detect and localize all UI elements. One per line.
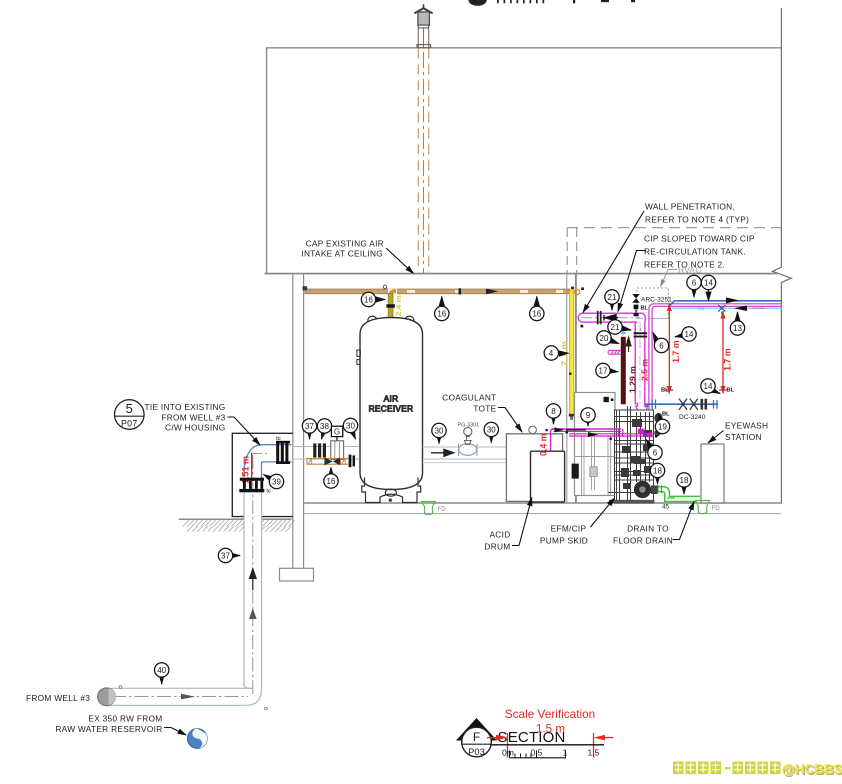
svg-text:RECEIVER: RECEIVER	[369, 403, 414, 413]
svg-text:TIE INTO EXISTING: TIE INTO EXISTING	[144, 402, 225, 412]
svg-text:1.29 m: 1.29 m	[628, 366, 638, 393]
svg-text:BL: BL	[641, 306, 649, 312]
svg-text:37: 37	[305, 422, 314, 431]
svg-text:F: F	[473, 730, 480, 744]
svg-text:FLOOR DRAIN: FLOOR DRAIN	[613, 536, 673, 546]
svg-text:16: 16	[327, 477, 336, 486]
svg-text:40: 40	[157, 666, 166, 675]
svg-text:1.7 m: 1.7 m	[723, 348, 733, 371]
svg-text:TOTE: TOTE	[473, 404, 496, 414]
svg-text:18: 18	[680, 476, 689, 485]
svg-text:Scale Verification: Scale Verification	[505, 707, 596, 721]
svg-text:14: 14	[704, 382, 713, 391]
svg-text:RAW WATER RESERVOIR: RAW WATER RESERVOIR	[55, 724, 162, 734]
svg-text:AIR: AIR	[384, 393, 399, 403]
svg-text:FROM WELL #3: FROM WELL #3	[161, 412, 225, 422]
svg-text:14: 14	[685, 330, 694, 339]
svg-text:PUMP SKID: PUMP SKID	[540, 536, 588, 546]
svg-text:13: 13	[733, 324, 742, 333]
svg-text:P07: P07	[121, 419, 138, 429]
svg-text:4: 4	[549, 349, 554, 358]
svg-text:1.5: 1.5	[588, 747, 600, 757]
svg-text:tc: tc	[266, 489, 271, 495]
svg-text:16: 16	[364, 296, 373, 305]
svg-text:16: 16	[437, 310, 446, 319]
svg-text:CIP SLOPED TOWARD CIP: CIP SLOPED TOWARD CIP	[644, 234, 755, 244]
svg-text:38: 38	[320, 422, 329, 431]
svg-text:1.7 m: 1.7 m	[671, 340, 681, 363]
svg-text:21: 21	[611, 323, 620, 332]
svg-text:16: 16	[532, 310, 541, 319]
svg-text:6: 6	[659, 342, 664, 351]
svg-text:6: 6	[692, 279, 697, 288]
svg-text:5: 5	[126, 401, 133, 416]
svg-text:21: 21	[608, 293, 617, 302]
svg-text:30: 30	[346, 422, 355, 431]
svg-text:STATION: STATION	[725, 432, 762, 442]
svg-text:CAP EXISTING AIR: CAP EXISTING AIR	[306, 239, 384, 249]
svg-text:20: 20	[600, 334, 609, 343]
svg-text:6: 6	[653, 449, 658, 458]
svg-text:45: 45	[662, 503, 670, 510]
svg-text:EYEWASH: EYEWASH	[725, 421, 768, 431]
svg-text:G: G	[334, 428, 340, 437]
svg-text:17: 17	[599, 367, 608, 376]
svg-text:@HCBBS: @HCBBS	[781, 761, 842, 776]
svg-text:0m: 0m	[502, 747, 514, 757]
svg-text:DRAIN TO: DRAIN TO	[627, 524, 669, 534]
svg-text:19: 19	[658, 423, 667, 432]
svg-text:BL: BL	[662, 411, 670, 417]
svg-text:COAGULANT: COAGULANT	[442, 392, 496, 402]
svg-text:14: 14	[704, 279, 713, 288]
svg-text:RE-CIRCULATION TANK.: RE-CIRCULATION TANK.	[644, 247, 746, 257]
svg-text:C/W HOUSING: C/W HOUSING	[165, 423, 225, 433]
svg-text:DC-3240: DC-3240	[679, 414, 706, 421]
svg-text:0.4 m: 0.4 m	[539, 433, 549, 456]
svg-text:2.5 m: 2.5 m	[640, 359, 650, 381]
svg-text:EFM/CIP: EFM/CIP	[551, 524, 587, 534]
svg-text:8: 8	[551, 407, 556, 416]
svg-text:P03: P03	[468, 746, 485, 757]
svg-text:FD: FD	[438, 506, 447, 513]
svg-text:BL: BL	[727, 387, 735, 393]
svg-text:REFER TO NOTE 2.: REFER TO NOTE 2.	[644, 260, 725, 270]
svg-text:37: 37	[221, 552, 230, 561]
svg-text:FD: FD	[712, 505, 721, 512]
svg-text:INTAKE AT CEILING: INTAKE AT CEILING	[301, 249, 383, 259]
svg-text:9: 9	[586, 411, 591, 420]
svg-text:C6: C6	[698, 306, 705, 312]
svg-text:EX 350 RW FROM: EX 350 RW FROM	[88, 714, 162, 724]
svg-text:ARC-3251: ARC-3251	[641, 297, 672, 304]
svg-text:30: 30	[487, 426, 496, 435]
svg-text:FROM WELL #3: FROM WELL #3	[26, 693, 90, 703]
svg-text:REFER TO NOTE 4 (TYP): REFER TO NOTE 4 (TYP)	[645, 215, 749, 225]
svg-text:DRUM: DRUM	[484, 542, 510, 552]
svg-text:2.4 m: 2.4 m	[394, 295, 403, 316]
svg-text:tc: tc	[276, 436, 281, 442]
svg-text:18: 18	[653, 467, 662, 476]
svg-text:30: 30	[435, 427, 444, 436]
svg-text:r: r	[640, 327, 642, 333]
svg-text:ACID: ACID	[489, 530, 510, 540]
svg-text:WALL PENETRATION,: WALL PENETRATION,	[645, 202, 735, 212]
svg-text:39: 39	[272, 478, 281, 487]
